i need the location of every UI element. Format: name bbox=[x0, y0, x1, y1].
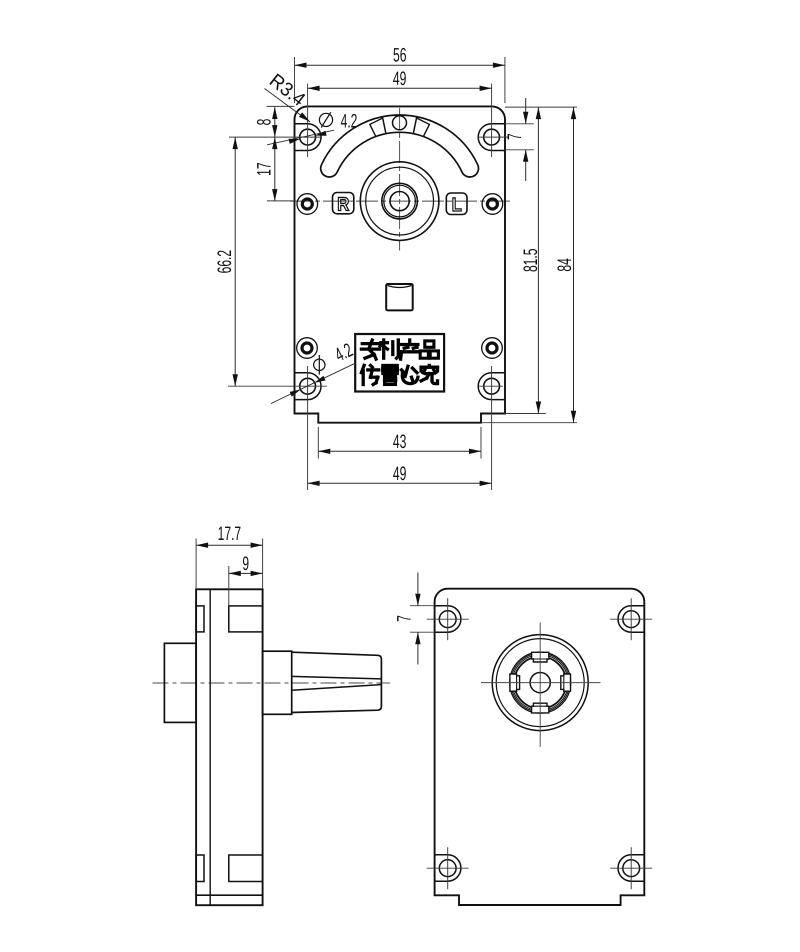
svg-text:17.7: 17.7 bbox=[218, 523, 242, 545]
svg-text:7: 7 bbox=[393, 615, 415, 622]
svg-text:8: 8 bbox=[254, 119, 276, 126]
svg-text:4.2: 4.2 bbox=[341, 110, 358, 132]
svg-text:L: L bbox=[452, 195, 462, 216]
svg-text:84: 84 bbox=[554, 258, 576, 272]
svg-text:56: 56 bbox=[393, 45, 407, 67]
svg-text:66.2: 66.2 bbox=[214, 250, 236, 274]
svg-text:R: R bbox=[337, 195, 349, 216]
svg-text:17: 17 bbox=[254, 162, 276, 176]
svg-text:43: 43 bbox=[393, 431, 407, 453]
svg-text:49: 49 bbox=[393, 463, 407, 485]
svg-text:9: 9 bbox=[242, 553, 249, 575]
svg-text:81.5: 81.5 bbox=[520, 248, 542, 272]
svg-text:7: 7 bbox=[504, 133, 526, 140]
svg-text:49: 49 bbox=[393, 68, 407, 90]
